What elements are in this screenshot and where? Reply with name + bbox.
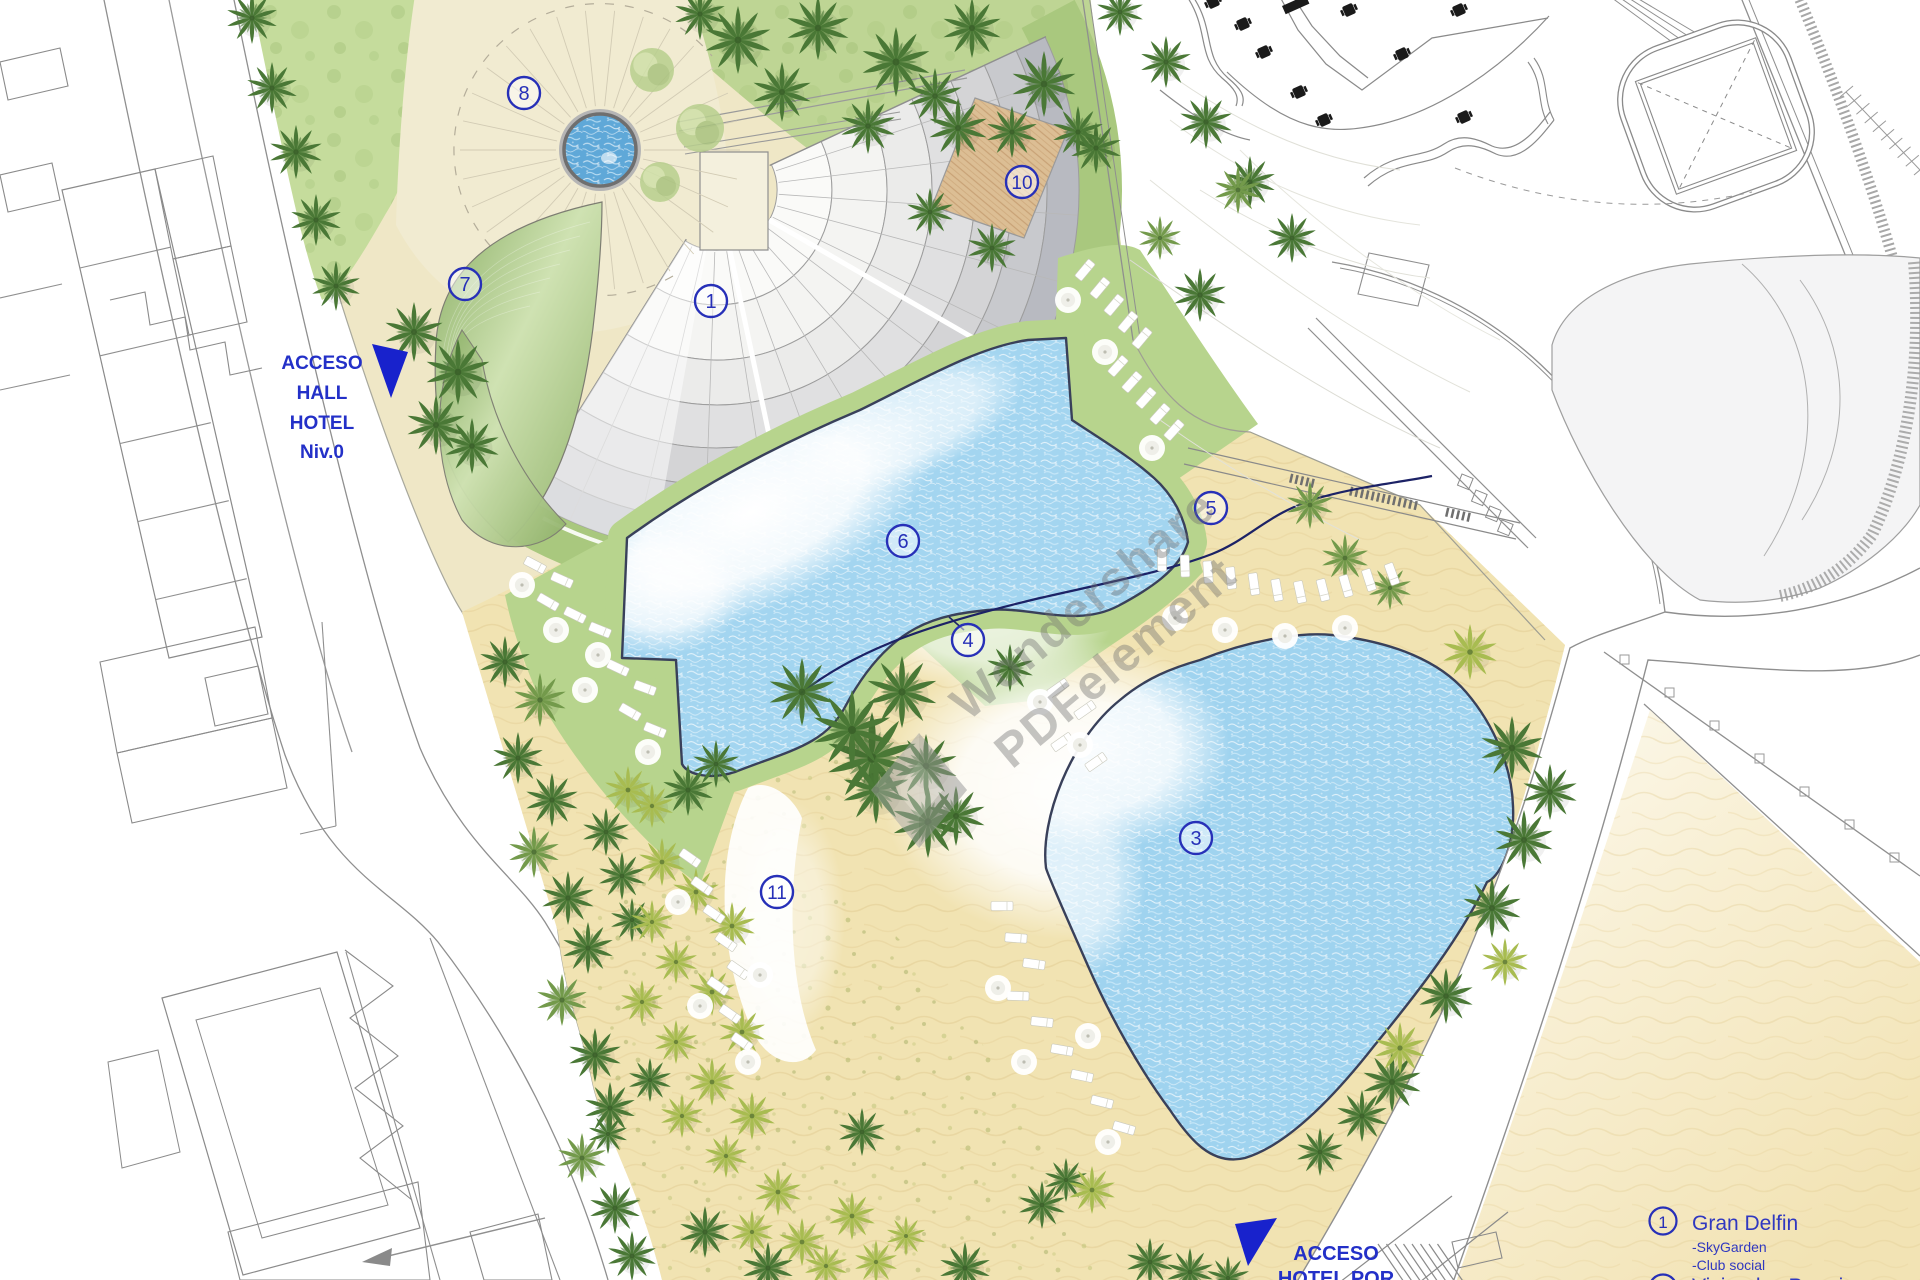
- svg-text:10: 10: [1011, 173, 1032, 194]
- svg-text:8: 8: [518, 83, 529, 105]
- svg-text:1: 1: [705, 291, 716, 313]
- svg-text:Viviendas Premium: Viviendas Premium: [1692, 1275, 1873, 1280]
- svg-text:HOTEL: HOTEL: [290, 413, 355, 434]
- svg-text:3: 3: [1190, 828, 1201, 850]
- svg-text:ACCESO: ACCESO: [281, 353, 362, 374]
- svg-text:6: 6: [897, 531, 908, 553]
- svg-text:HOTEL POR: HOTEL POR: [1278, 1268, 1395, 1280]
- svg-text:-Club social: -Club social: [1692, 1257, 1765, 1273]
- svg-text:Gran Delfin: Gran Delfin: [1692, 1212, 1798, 1235]
- svg-text:Niv.0: Niv.0: [300, 442, 344, 463]
- svg-text:-SkyGarden: -SkyGarden: [1692, 1239, 1767, 1255]
- svg-text:4: 4: [962, 630, 973, 652]
- svg-text:ACCESO: ACCESO: [1293, 1243, 1379, 1265]
- svg-text:11: 11: [767, 883, 787, 904]
- svg-text:HALL: HALL: [297, 383, 348, 404]
- svg-text:1: 1: [1658, 1213, 1667, 1232]
- svg-text:7: 7: [459, 274, 470, 296]
